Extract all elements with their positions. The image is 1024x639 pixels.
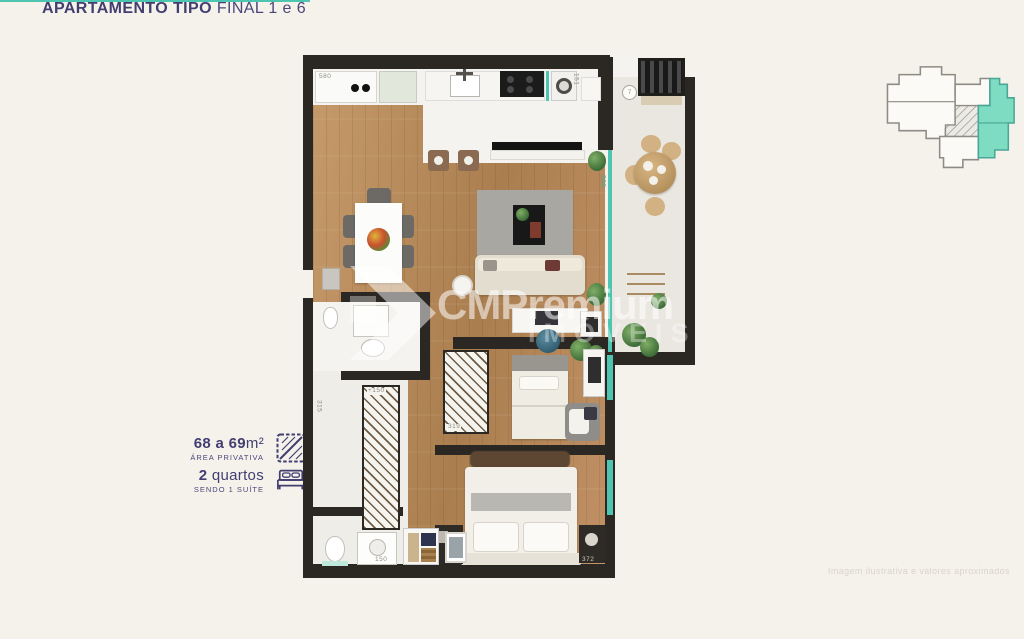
rooms-value: 2 quartos	[194, 467, 264, 484]
fruit-bowl	[367, 228, 390, 251]
balcony-chair	[645, 197, 665, 216]
chevron-right-logo	[348, 266, 438, 362]
keyplan-locator	[872, 45, 1017, 170]
keyplan-unit-bottom	[940, 137, 979, 168]
accent-divider	[0, 0, 310, 2]
page-title: APARTAMENTO TIPO FINAL 1 e 6	[0, 0, 306, 18]
balcony-table	[634, 152, 676, 194]
wall-left-upper	[303, 55, 313, 270]
dim-label-wardrobe-hall: +150	[367, 388, 386, 395]
entry-console	[322, 268, 340, 290]
faucet-icon	[463, 69, 466, 81]
spec-area: 68 a 69m² ÁREA PRIVATIVA	[190, 433, 306, 463]
bed-headboard	[461, 553, 581, 565]
wardrobe-white	[583, 349, 605, 397]
rooms-label: SENDO 1 SUÍTE	[194, 485, 264, 494]
dim-label-bedroom: 372	[582, 557, 594, 564]
bath-mat	[322, 561, 348, 566]
watermark-sub: IMÓVEIS	[528, 318, 697, 349]
wall-art	[445, 532, 467, 563]
page-title-bold: APARTAMENTO TIPO	[42, 0, 212, 17]
balcony-drain: 7	[622, 85, 637, 100]
service-nook	[581, 77, 601, 101]
bedroom2-window	[607, 460, 613, 515]
pillow	[519, 376, 559, 390]
towel-cabinet	[403, 528, 439, 565]
disclaimer-text: Imagem ilustrativa e valores aproximados	[828, 566, 1010, 576]
stove-knob	[351, 84, 359, 92]
bedroom1-window	[607, 355, 613, 400]
bar-stool	[428, 150, 449, 171]
dim-label-washer: 151	[572, 73, 579, 85]
tv	[492, 142, 582, 150]
plant	[516, 208, 529, 221]
pillow	[473, 522, 519, 552]
area-label: ÁREA PRIVATIVA	[190, 453, 264, 462]
page-title-light: FINAL 1 e 6	[217, 0, 306, 17]
sofa-pillow	[483, 260, 497, 271]
bed-double	[465, 467, 577, 564]
dim-label-wardrobe-bedroom: 319	[447, 424, 461, 431]
cooktop	[500, 71, 544, 97]
plant	[588, 151, 606, 171]
balcony-mat	[641, 96, 682, 105]
wall-bottom	[303, 564, 615, 578]
armchair	[565, 403, 600, 441]
toilet-suite	[325, 536, 345, 562]
floorplan-sheet: { "info": { "title_bold": "APARTAMENTO T…	[0, 0, 1024, 639]
bed-single	[512, 371, 568, 439]
dim-label-kitchen: 580	[319, 74, 331, 81]
kitchen-glass-cabinet	[379, 71, 417, 103]
pillow	[523, 522, 569, 552]
wall-left-lower	[303, 298, 313, 578]
spec-rooms: 2 quartos SENDO 1 SUÍTE	[194, 465, 306, 495]
ac-condenser-unit	[638, 58, 685, 96]
toilet	[323, 307, 338, 329]
tray	[530, 222, 541, 238]
bed1-headboard	[512, 355, 568, 371]
stove-knob	[362, 84, 370, 92]
area-value: 68 a 69m²	[190, 435, 264, 452]
wall-service	[598, 57, 613, 150]
sofa-pillow	[545, 260, 560, 271]
faucet-icon	[456, 72, 473, 75]
wall-top	[303, 55, 610, 69]
wardrobe-bedroom1	[443, 350, 489, 434]
dim-label-vanity: 150	[375, 557, 387, 564]
balcony-chair	[641, 135, 661, 153]
tv-console	[490, 150, 585, 160]
bed-bench	[470, 451, 570, 468]
bar-stool	[458, 150, 479, 171]
wall-bathroom-bottom	[341, 371, 430, 380]
dim-label-glass-door: 200	[599, 175, 606, 187]
wardrobe-hall	[362, 385, 400, 530]
dim-label-hall: 315	[315, 400, 322, 412]
